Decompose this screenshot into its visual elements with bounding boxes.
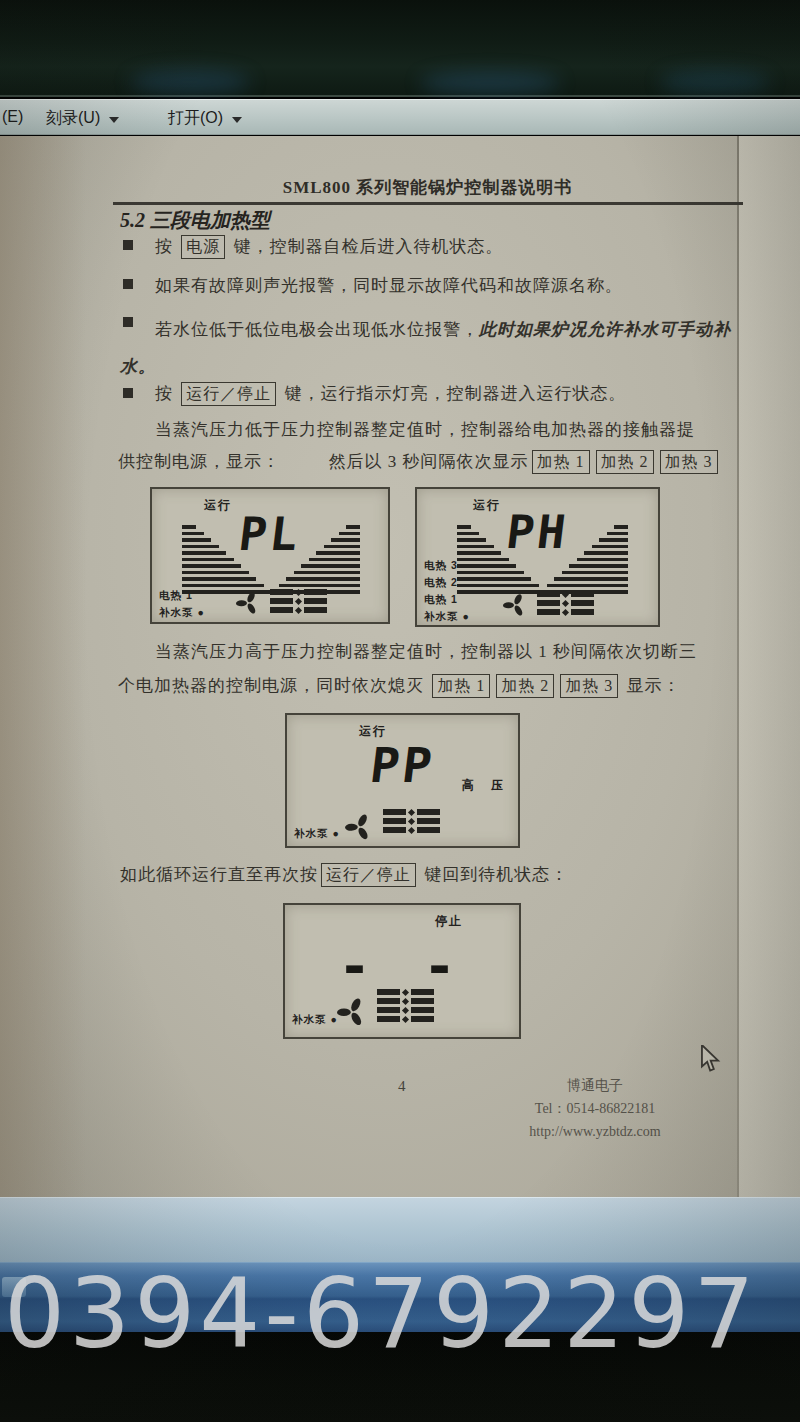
heat1-key-label: 加热 1 bbox=[432, 674, 490, 698]
lcd-bargraph-right bbox=[539, 525, 628, 594]
company-url: http://www.yzbtdz.com bbox=[470, 1120, 720, 1143]
lcd-label-heater3: 电热 3 bbox=[424, 559, 458, 573]
pump-fan-icon bbox=[337, 997, 367, 1027]
document-title: SML800 系列智能锅炉控制器说明书 bbox=[120, 176, 735, 199]
page-number: 4 bbox=[398, 1078, 406, 1095]
lcd-label-pump: 补水泵 ● bbox=[294, 827, 340, 841]
chevron-down-icon bbox=[109, 117, 119, 123]
pump-fan-icon bbox=[236, 591, 260, 615]
heat2-key-label: 加热 2 bbox=[596, 450, 654, 474]
chevron-down-icon bbox=[232, 117, 242, 123]
bullet-1: 按 电源 键，控制器自检后进入待机状态。 bbox=[155, 235, 504, 259]
document-photo: SML800 系列智能锅炉控制器说明书 5.2 三段电加热型 按 电源 键，控制… bbox=[0, 136, 800, 1197]
bullet-marker bbox=[123, 388, 133, 398]
lcd-label-heater1: 电热 1 bbox=[424, 593, 458, 607]
heater-stack-icon bbox=[377, 989, 434, 1022]
desk-area bbox=[0, 1332, 800, 1422]
monitor-bezel-top bbox=[0, 0, 800, 97]
bullet-3: 若水位低于低位电极会出现低水位报警，此时如果炉况允许补水可手动补水。 bbox=[120, 311, 738, 385]
footer-company-block: 博通电子 Tel：0514-86822181 http://www.yzbtdz… bbox=[470, 1074, 720, 1143]
taskbar-left-icon[interactable] bbox=[2, 1277, 26, 1297]
pump-fan-icon bbox=[345, 813, 373, 841]
windows-taskbar: D:\360云盘\仪... 02 - Windows ... bbox=[0, 1262, 800, 1332]
menu-item-burn[interactable]: 刻录(U) bbox=[46, 108, 119, 129]
heat3-key-label: 加热 3 bbox=[560, 674, 618, 698]
power-key-label: 电源 bbox=[181, 235, 225, 259]
bullet-marker bbox=[123, 279, 133, 289]
lcd-label-high-pressure: 高 压 bbox=[462, 777, 510, 794]
heater-stack-icon bbox=[383, 809, 440, 833]
heat1-key-label: 加热 1 bbox=[532, 450, 590, 474]
viewer-menubar: (E) 刻录(U) 打开(O) bbox=[0, 99, 800, 135]
lcd-bargraph-left bbox=[182, 525, 271, 594]
para-high-line2: 个电加热器的控制电源，同时依次熄灭 加热 1加热 2加热 3 显示： bbox=[118, 674, 681, 698]
title-rule bbox=[113, 202, 743, 205]
heat2-key-label: 加热 2 bbox=[496, 674, 554, 698]
company-name: 博通电子 bbox=[470, 1074, 720, 1097]
bullet-marker bbox=[123, 240, 133, 250]
bullet-4: 按 运行／停止 键，运行指示灯亮，控制器进入运行状态。 bbox=[155, 382, 627, 406]
screen-reflection bbox=[660, 70, 770, 94]
lcd-label-heater2: 电热 2 bbox=[424, 576, 458, 590]
menu-item-open[interactable]: 打开(O) bbox=[168, 108, 242, 129]
heat3-key-label: 加热 3 bbox=[660, 450, 718, 474]
screen-reflection bbox=[130, 70, 250, 94]
bullet-2: 如果有故障则声光报警，同时显示故障代码和故障源名称。 bbox=[155, 274, 623, 297]
para-loop: 如此循环运行直至再次按运行／停止 键回到待机状态： bbox=[120, 863, 568, 887]
lcd-label-pump: 补水泵 ● bbox=[424, 610, 470, 624]
para-low-line1: 当蒸汽压力低于压力控制器整定值时，控制器给电加热器的接触器提 bbox=[155, 418, 695, 441]
section-heading: 5.2 三段电加热型 bbox=[120, 207, 270, 234]
lcd-label-heater1: 电热 1 bbox=[159, 589, 193, 603]
lcd-bargraph-right bbox=[271, 525, 360, 594]
para-high-line1: 当蒸汽压力高于压力控制器整定值时，控制器以 1 秒间隔依次切断三 bbox=[155, 640, 697, 663]
lcd-bargraph-left bbox=[457, 525, 546, 594]
company-tel: Tel：0514-86822181 bbox=[470, 1097, 720, 1120]
photo-of-screen: (E) 刻录(U) 打开(O) SML800 系列智能锅炉控制器说明书 5.2 … bbox=[0, 0, 800, 1422]
lcd-label-pump: 补水泵 ● bbox=[292, 1013, 338, 1027]
run-stop-key-label: 运行／停止 bbox=[181, 382, 276, 406]
mouse-cursor bbox=[700, 1045, 722, 1073]
heater-stack-icon bbox=[537, 591, 594, 615]
heater-stack-icon bbox=[270, 589, 327, 613]
lcd-display-pp: 运行 PP 高 压 补水泵 ● bbox=[285, 713, 520, 848]
viewer-toolbar: + bbox=[0, 1197, 800, 1262]
para-low-line2: 供控制电源，显示： 然后以 3 秒间隔依次显示加热 1加热 2加热 3 bbox=[118, 450, 721, 474]
lcd-display-pl: 运行 PL 电热 1 补水泵 ● bbox=[150, 487, 390, 624]
screen-reflection bbox=[420, 72, 560, 94]
lcd-status-stop: 停止 bbox=[435, 913, 463, 930]
lcd-display-ph: 运行 PH 电热 3 电热 2 电热 1 补水泵 ● bbox=[415, 487, 660, 627]
run-stop-key-label: 运行／停止 bbox=[321, 863, 416, 887]
lcd-display-stop: 停止 - - 补水泵 ● bbox=[283, 903, 521, 1039]
menu-item-partial[interactable]: (E) bbox=[2, 108, 23, 126]
pump-fan-icon bbox=[503, 593, 527, 617]
lcd-label-pump: 补水泵 ● bbox=[159, 606, 205, 620]
